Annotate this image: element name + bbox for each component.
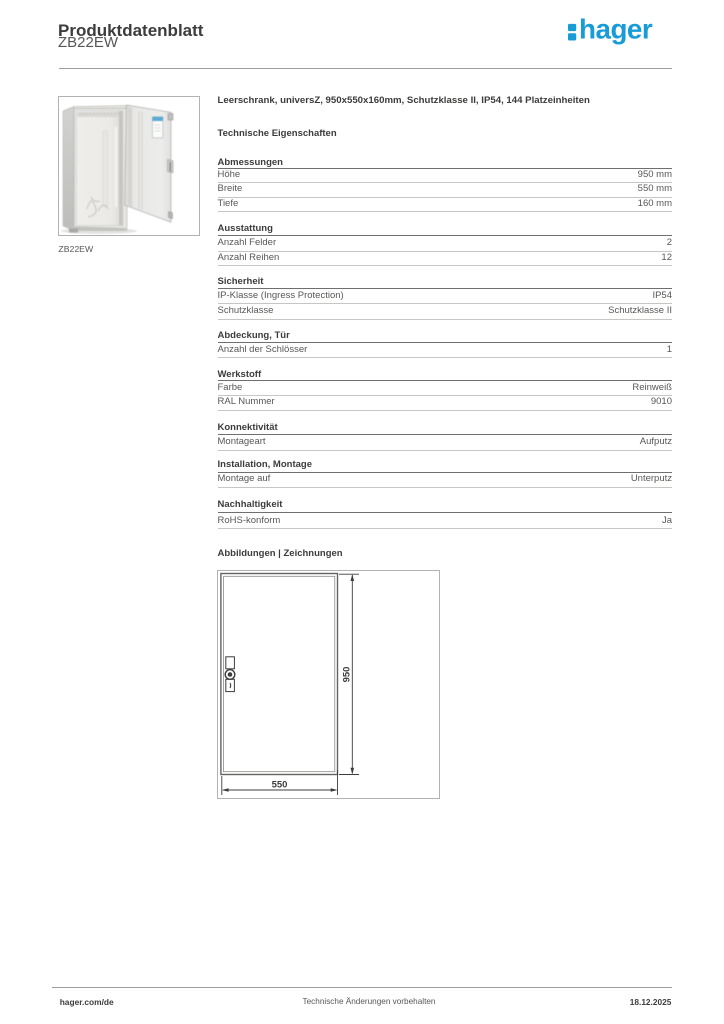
svg-text:hager: hager xyxy=(579,15,653,45)
svg-text:550: 550 xyxy=(272,780,288,791)
svg-text:950: 950 xyxy=(342,667,353,683)
